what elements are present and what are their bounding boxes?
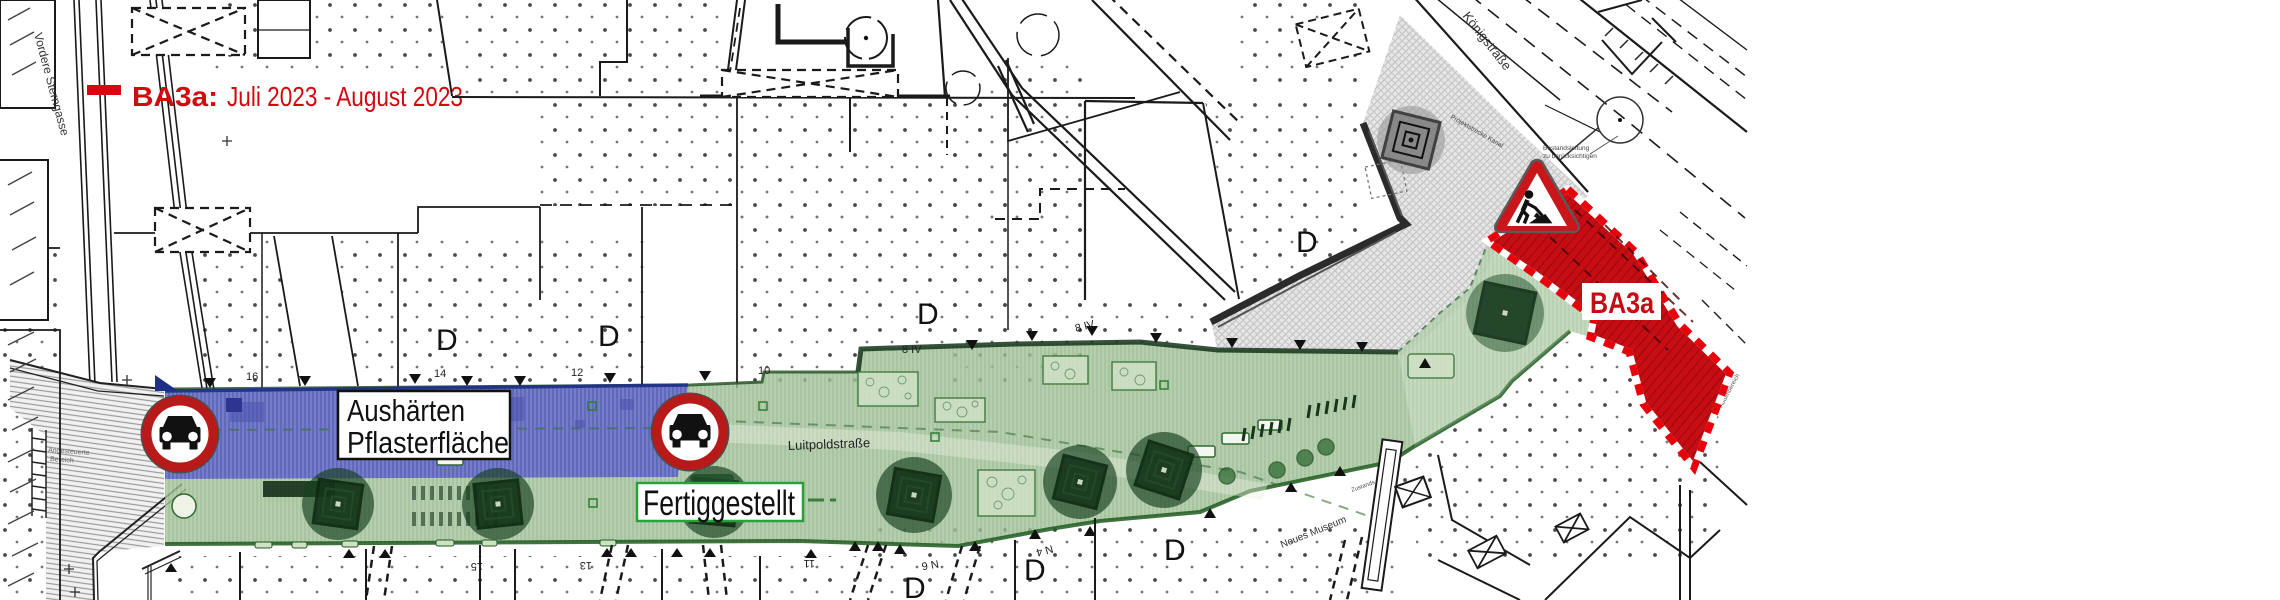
svg-text:Aushärten: Aushärten bbox=[347, 393, 465, 428]
svg-text:BA3a:: BA3a: bbox=[132, 81, 218, 112]
svg-text:8 IV: 8 IV bbox=[902, 344, 922, 356]
svg-text:BA3a: BA3a bbox=[1590, 287, 1654, 320]
svg-text:12: 12 bbox=[571, 367, 583, 379]
svg-text:zu berücksichtigen: zu berücksichtigen bbox=[1543, 153, 1597, 160]
svg-text:16: 16 bbox=[246, 371, 258, 383]
svg-text:D: D bbox=[1296, 226, 1318, 259]
svg-text:Pflasterfläche: Pflasterfläche bbox=[347, 425, 509, 460]
svg-text:10: 10 bbox=[758, 365, 770, 377]
svg-text:D: D bbox=[1164, 534, 1186, 567]
svg-text:11: 11 bbox=[804, 557, 815, 569]
svg-text:D: D bbox=[598, 320, 620, 353]
svg-text:D: D bbox=[1024, 554, 1046, 587]
svg-text:D: D bbox=[436, 324, 458, 357]
svg-text:Juli 2023 - August 2023: Juli 2023 - August 2023 bbox=[227, 81, 463, 112]
svg-text:Fertiggestellt: Fertiggestellt bbox=[643, 484, 795, 523]
svg-text:13: 13 bbox=[580, 559, 592, 571]
svg-text:D: D bbox=[917, 298, 939, 331]
svg-text:15: 15 bbox=[471, 560, 483, 572]
svg-text:D: D bbox=[904, 572, 926, 600]
svg-text:Luitpoldstraße: Luitpoldstraße bbox=[788, 435, 871, 453]
svg-text:Bestandsleitung: Bestandsleitung bbox=[1543, 145, 1590, 152]
svg-text:14: 14 bbox=[434, 368, 446, 380]
